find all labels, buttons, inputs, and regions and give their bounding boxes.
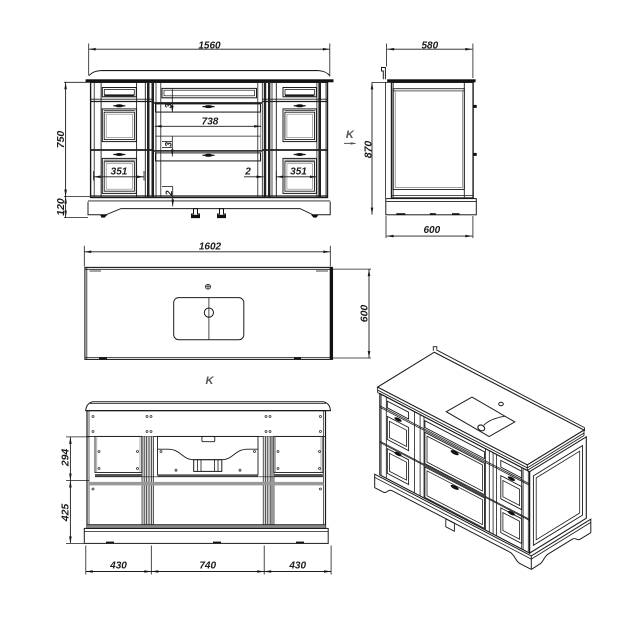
svg-text:750: 750: [55, 131, 67, 149]
svg-text:1602: 1602: [199, 241, 222, 252]
svg-text:740: 740: [199, 561, 216, 572]
svg-text:738: 738: [202, 116, 219, 127]
svg-text:430: 430: [109, 561, 127, 572]
svg-text:120: 120: [55, 198, 67, 216]
svg-text:1560: 1560: [198, 40, 221, 51]
svg-text:3: 3: [163, 142, 173, 147]
svg-text:430: 430: [288, 561, 306, 572]
svg-text:351: 351: [290, 166, 307, 177]
svg-text:425: 425: [60, 504, 72, 523]
svg-text:600: 600: [423, 225, 440, 236]
svg-text:294: 294: [60, 449, 72, 468]
svg-text:351: 351: [111, 166, 128, 177]
svg-text:870: 870: [362, 141, 374, 159]
svg-text:580: 580: [421, 40, 438, 51]
svg-text:600: 600: [359, 305, 371, 323]
svg-text:K: K: [206, 375, 215, 387]
svg-text:K: K: [346, 129, 355, 141]
svg-text:2: 2: [244, 166, 251, 177]
